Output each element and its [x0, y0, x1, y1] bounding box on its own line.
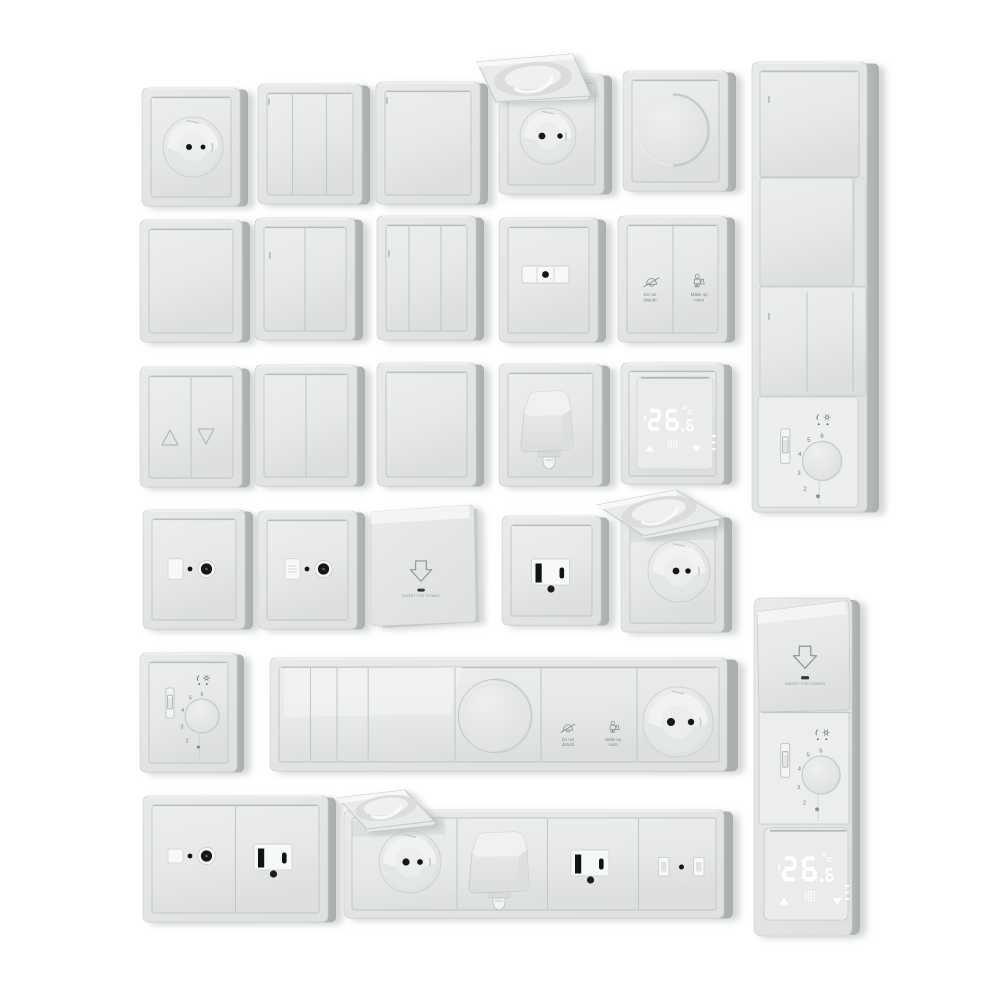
svg-text:✱: ✱: [815, 493, 820, 500]
svg-text:room: room: [608, 742, 618, 747]
svg-text:4: 4: [181, 708, 184, 714]
svg-text:✱: ✱: [196, 745, 200, 751]
svg-text:3: 3: [797, 785, 800, 791]
svg-text:C: C: [827, 855, 833, 864]
svg-text:disturb: disturb: [562, 742, 575, 747]
svg-text:INSERT FOR POWER: INSERT FOR POWER: [785, 682, 826, 686]
svg-text:6: 6: [819, 748, 822, 754]
svg-text:3: 3: [181, 725, 184, 731]
svg-text:2: 2: [186, 739, 189, 745]
svg-text:room: room: [694, 298, 704, 303]
svg-text:✱: ✱: [815, 806, 820, 813]
svg-text:Do not: Do not: [644, 292, 658, 297]
svg-text:5: 5: [189, 696, 192, 702]
svg-text:disturb: disturb: [643, 298, 657, 303]
svg-text:INSERT FOR POWER: INSERT FOR POWER: [402, 594, 440, 598]
svg-text:2: 2: [803, 800, 806, 806]
svg-text:Make up: Make up: [691, 292, 708, 297]
svg-text:C: C: [688, 409, 693, 416]
svg-text:5: 5: [807, 752, 810, 758]
svg-text:6: 6: [201, 692, 204, 698]
